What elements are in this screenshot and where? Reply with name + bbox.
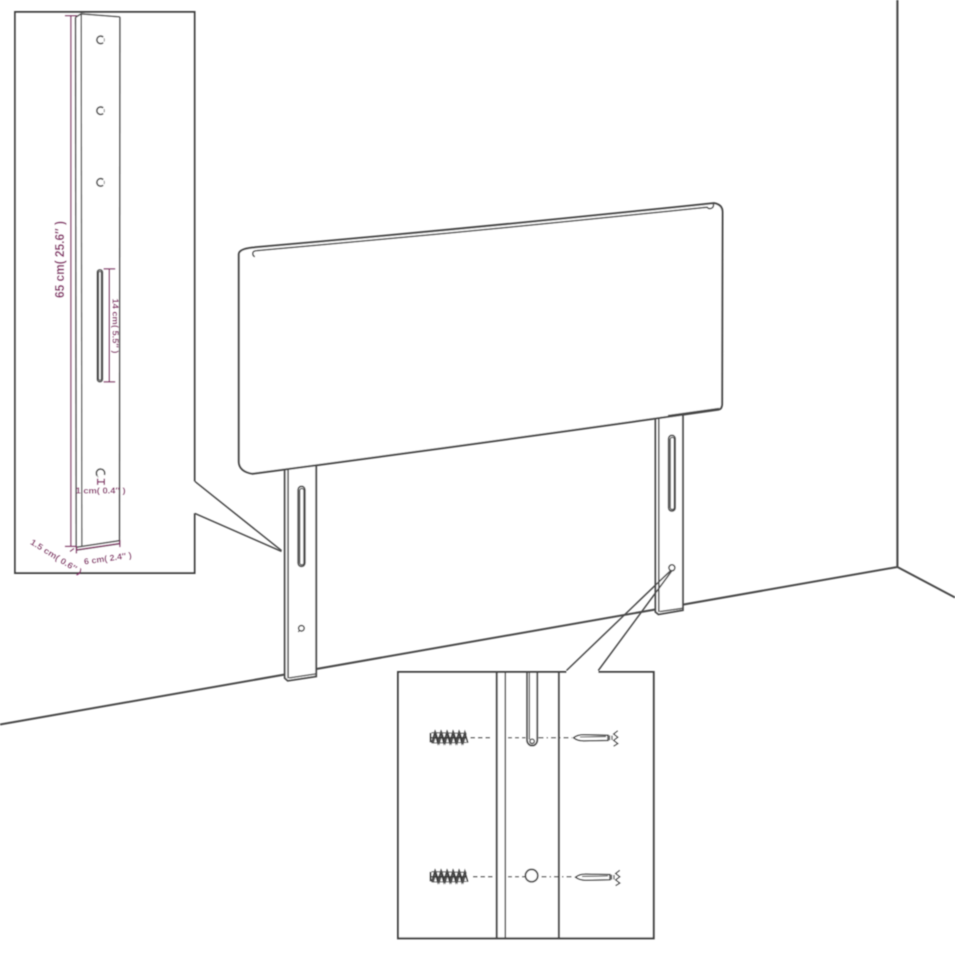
svg-text:1 cm( 0.4″ ): 1 cm( 0.4″ )	[76, 485, 126, 495]
svg-text:65 cm( 25.6″ ): 65 cm( 25.6″ )	[52, 221, 67, 298]
svg-text:14 cm( 5.5″ ): 14 cm( 5.5″ )	[110, 299, 120, 354]
